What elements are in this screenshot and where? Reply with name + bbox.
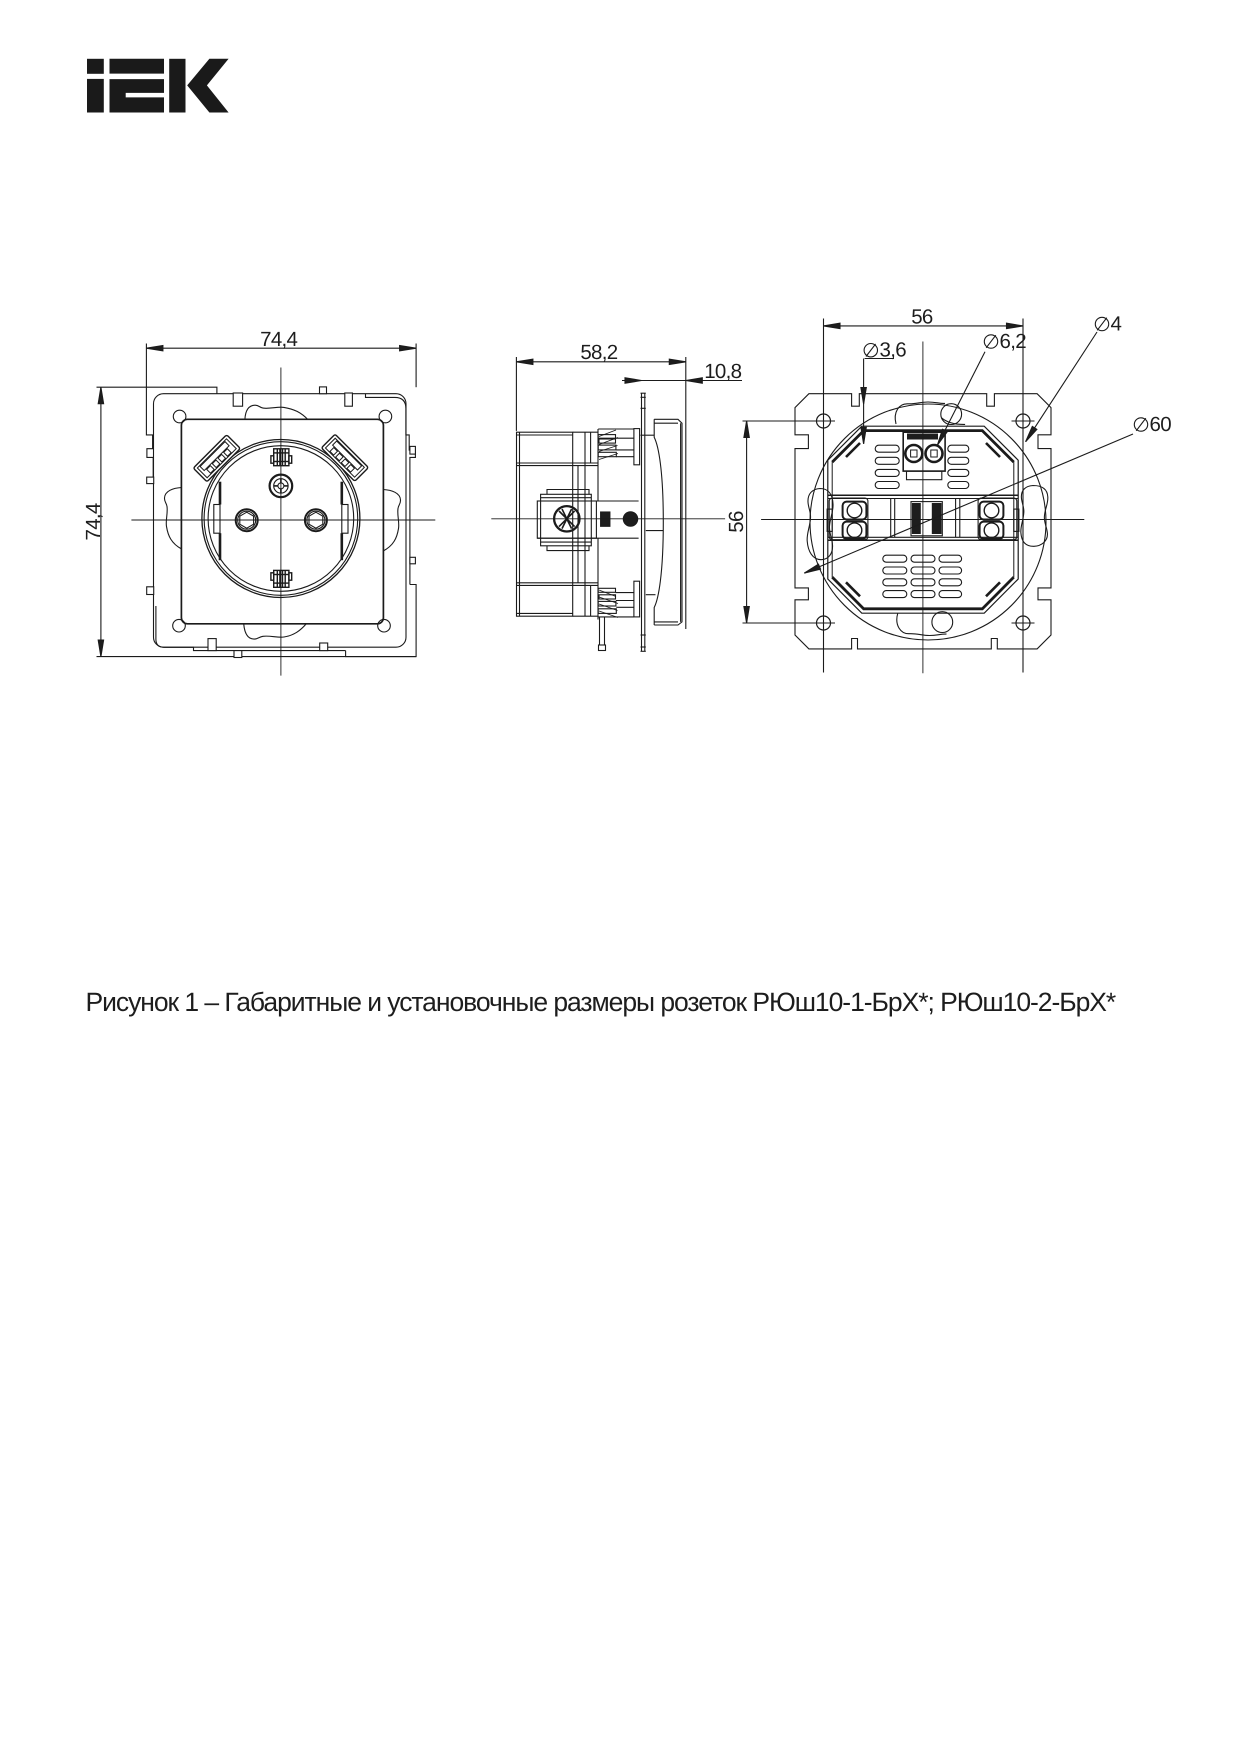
svg-text:Рисунок 1 – Габаритные и устан: Рисунок 1 – Габаритные и установочные ра… [86, 987, 1116, 1017]
svg-text:10,8: 10,8 [704, 360, 741, 383]
svg-text:74,4: 74,4 [82, 503, 105, 540]
svg-text:60: 60 [1150, 413, 1172, 436]
svg-text:3,6: 3,6 [880, 339, 907, 362]
svg-text:56: 56 [725, 511, 748, 533]
svg-text:74,4: 74,4 [260, 328, 297, 351]
svg-text:4: 4 [1111, 313, 1122, 336]
svg-text:6,2: 6,2 [1000, 330, 1027, 353]
svg-text:58,2: 58,2 [580, 341, 617, 364]
svg-text:56: 56 [911, 306, 933, 329]
